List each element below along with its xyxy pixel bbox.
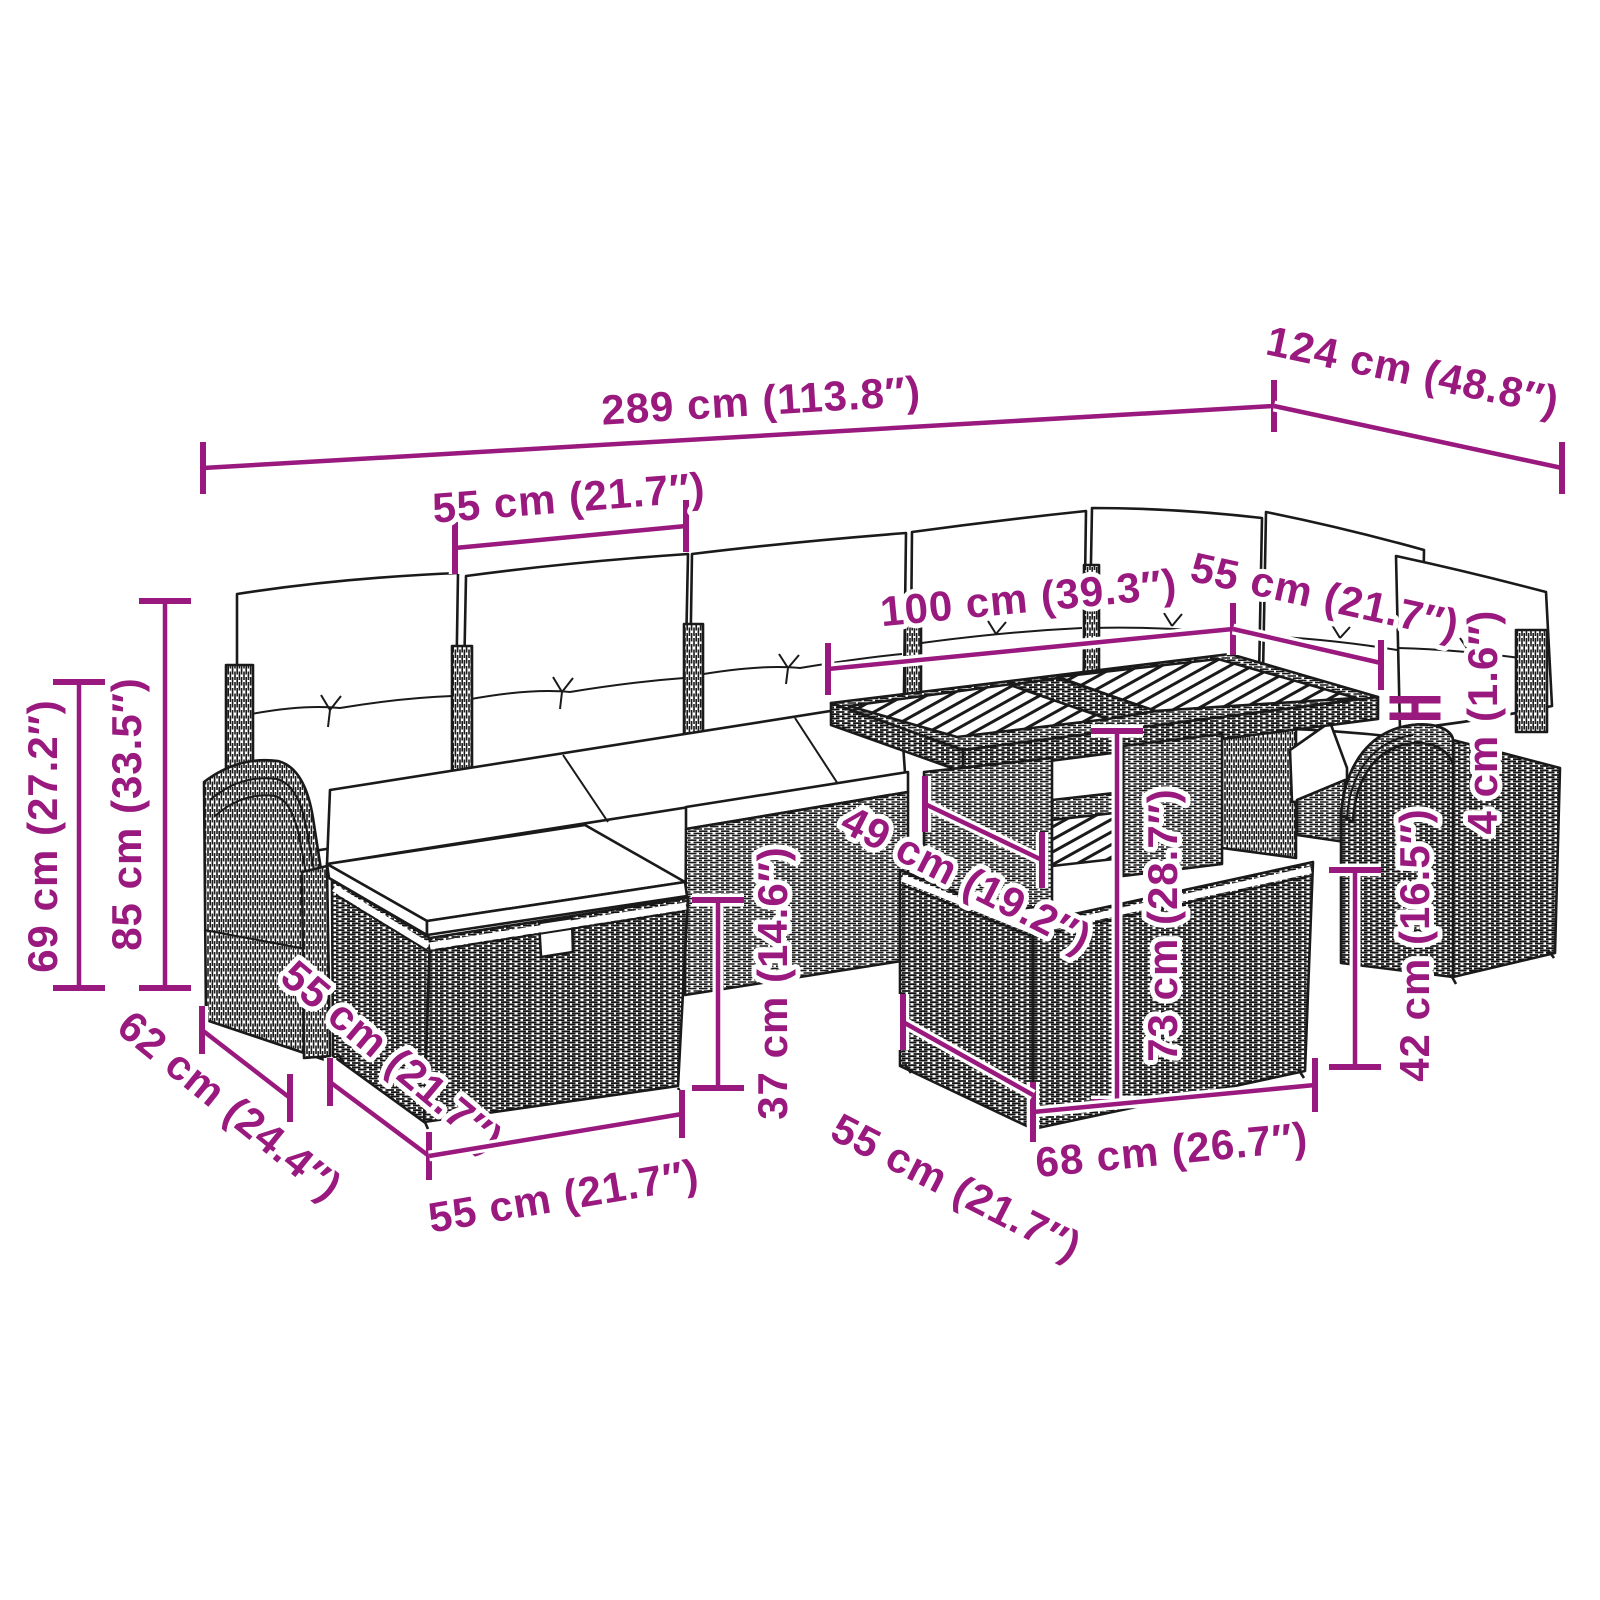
svg-text:69 cm (27.2″): 69 cm (27.2″) bbox=[19, 699, 66, 973]
svg-text:85 cm (33.5″): 85 cm (33.5″) bbox=[103, 677, 150, 951]
svg-text:4 cm (1.6″): 4 cm (1.6″) bbox=[1459, 610, 1506, 835]
svg-text:73 cm (28.7″): 73 cm (28.7″) bbox=[1139, 788, 1186, 1062]
svg-text:37 cm (14.6″): 37 cm (14.6″) bbox=[749, 846, 796, 1120]
svg-text:42 cm (16.5″): 42 cm (16.5″) bbox=[1391, 808, 1438, 1082]
